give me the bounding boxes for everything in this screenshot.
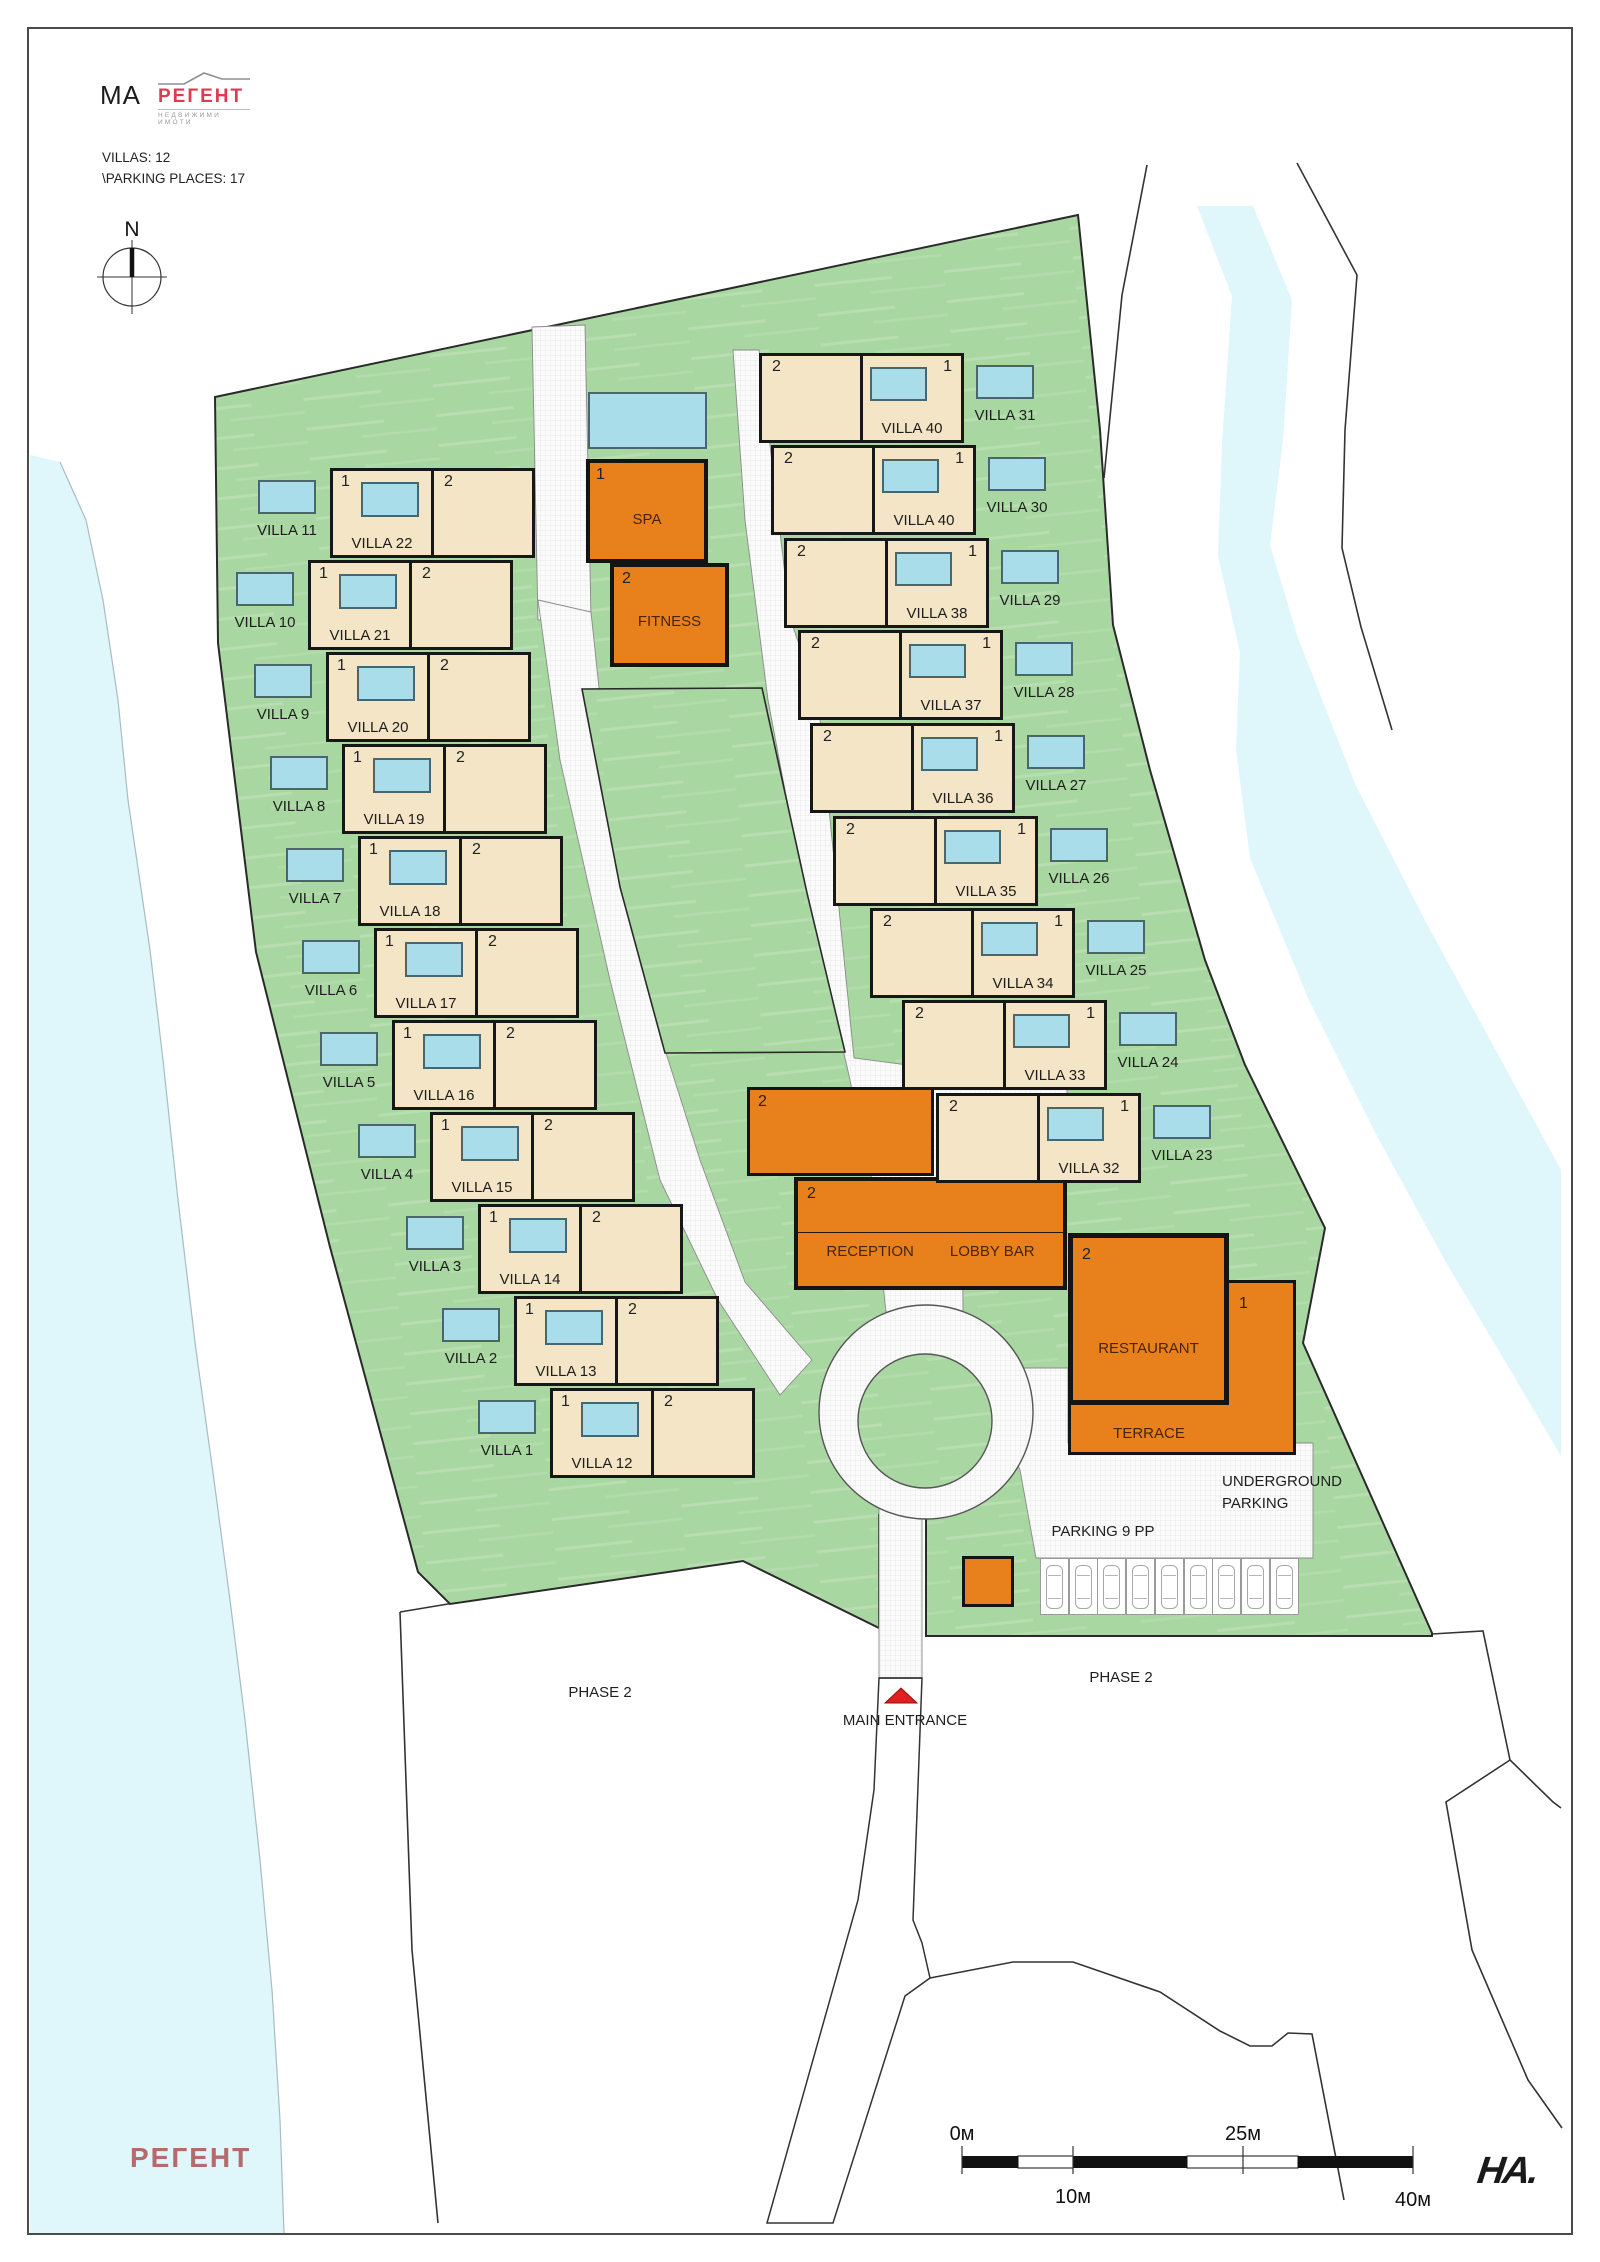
reception-number: 2 — [807, 1185, 816, 1203]
villa-pool-label: VILLA 28 — [989, 684, 1099, 701]
villa-pool-label: VILLA 31 — [950, 407, 1060, 424]
villa-building: 21VILLA 40 — [771, 445, 976, 535]
villa-unit-pool — [509, 1218, 567, 1253]
villa-unit-2: 2 — [430, 655, 528, 739]
unit-number: 1 — [441, 1117, 450, 1135]
villa-unit-1: 1VILLA 14 — [481, 1207, 582, 1291]
unit-number: 1 — [1017, 821, 1026, 839]
roundabout-island — [858, 1354, 992, 1488]
unit-number: 1 — [341, 473, 350, 491]
phase2-left-label: PHASE 2 — [530, 1684, 670, 1701]
parking-stall — [1270, 1558, 1299, 1615]
villa-unit-2: 2 — [873, 911, 974, 995]
car-icon — [1190, 1565, 1207, 1609]
villa-unit-pool — [339, 574, 397, 609]
reception-annex: 2 — [747, 1087, 934, 1176]
villa-pool — [358, 1124, 416, 1158]
villa-unit-pool — [423, 1034, 481, 1069]
villa-unit-1: 1VILLA 22 — [333, 471, 434, 555]
villa-unit-pool — [1013, 1014, 1070, 1048]
parking-stall — [1184, 1558, 1213, 1615]
villa-unit-pool — [389, 850, 447, 885]
villa-building: 1VILLA 172 — [374, 928, 579, 1018]
restaurant-wing-number: 1 — [1239, 1295, 1248, 1313]
villa-building: 1VILLA 142 — [478, 1204, 683, 1294]
villa-building: 21VILLA 33 — [902, 1000, 1107, 1090]
villa-unit-1: 1VILLA 21 — [311, 563, 412, 647]
villa-unit-1: 1VILLA 40 — [863, 356, 961, 440]
unit-number: 1 — [1054, 913, 1063, 931]
villa-unit-1: 1VILLA 20 — [329, 655, 430, 739]
villa-unit-pool — [895, 552, 952, 586]
villa-pool — [1015, 642, 1073, 676]
villa-building-label: VILLA 16 — [396, 1087, 492, 1104]
villa-building-label: VILLA 18 — [362, 903, 458, 920]
unit-number: 2 — [440, 657, 449, 675]
villa-building-label: VILLA 37 — [903, 697, 999, 714]
villa-pool-label: VILLA 3 — [380, 1258, 490, 1275]
restaurant-number: 2 — [1082, 1246, 1091, 1264]
villa-building: 21VILLA 32 — [936, 1093, 1141, 1183]
villa-unit-1: 1VILLA 19 — [345, 747, 446, 831]
villa-building: 1VILLA 182 — [358, 836, 563, 926]
scale-25: 25м — [1225, 2123, 1261, 2145]
villa-unit-pool — [909, 644, 966, 678]
villa-unit-pool — [981, 922, 1038, 956]
car-icon — [1218, 1565, 1235, 1609]
villa-building-label: VILLA 17 — [378, 995, 474, 1012]
villa-building: 1VILLA 222 — [330, 468, 535, 558]
restaurant-building: 2 RESTAURANT — [1068, 1233, 1229, 1405]
reception-divider — [797, 1232, 1064, 1233]
villa-pool — [988, 457, 1046, 491]
unit-number: 2 — [488, 933, 497, 951]
underground-line2: PARKING — [1222, 1495, 1288, 1512]
villa-unit-pool — [581, 1402, 639, 1437]
unit-number: 2 — [797, 543, 806, 561]
parking-stall — [1126, 1558, 1155, 1615]
car-icon — [1046, 1565, 1063, 1609]
villa-unit-1: 1VILLA 13 — [517, 1299, 618, 1383]
villa-pool — [976, 365, 1034, 399]
villa-unit-2: 2 — [654, 1391, 752, 1475]
utility-building — [962, 1556, 1014, 1607]
unit-number: 2 — [444, 473, 453, 491]
stats-villas: VILLAS: 12 — [102, 150, 170, 165]
unit-number: 2 — [544, 1117, 553, 1135]
unit-number: 2 — [883, 913, 892, 931]
villa-building-label: VILLA 40 — [864, 420, 960, 437]
parking-stall — [1212, 1558, 1241, 1615]
villa-unit-pool — [870, 367, 927, 401]
villa-pool — [258, 480, 316, 514]
scale-bar: 0м 25м 10м 40м — [950, 2123, 1431, 2211]
unit-number: 2 — [823, 728, 832, 746]
villa-unit-2: 2 — [762, 356, 863, 440]
villa-pool-label: VILLA 6 — [276, 982, 386, 999]
villa-building-label: VILLA 35 — [938, 883, 1034, 900]
spa-number: 1 — [596, 466, 605, 484]
villa-building: 21VILLA 36 — [810, 723, 1015, 813]
villa-unit-1: 1VILLA 37 — [902, 633, 1000, 717]
villa-building: 1VILLA 192 — [342, 744, 547, 834]
villa-building-label: VILLA 34 — [975, 975, 1071, 992]
villa-pool — [406, 1216, 464, 1250]
unit-number: 1 — [319, 565, 328, 583]
unit-number: 2 — [664, 1393, 673, 1411]
villa-pool — [442, 1308, 500, 1342]
villa-unit-1: 1VILLA 40 — [875, 448, 973, 532]
villa-unit-1: 1VILLA 12 — [553, 1391, 654, 1475]
villa-building-label: VILLA 13 — [518, 1363, 614, 1380]
unit-number: 1 — [353, 749, 362, 767]
compass-n-label: N — [124, 218, 139, 241]
villa-pool — [270, 756, 328, 790]
villa-unit-pool — [361, 482, 419, 517]
villa-pool — [1050, 828, 1108, 862]
villa-pool-label: VILLA 23 — [1127, 1147, 1237, 1164]
villa-building: 21VILLA 35 — [833, 816, 1038, 906]
villa-building: 21VILLA 37 — [798, 630, 1003, 720]
villa-building: 1VILLA 132 — [514, 1296, 719, 1386]
villa-unit-1: 1VILLA 38 — [888, 541, 986, 625]
villa-pool-label: VILLA 24 — [1093, 1054, 1203, 1071]
villa-building-label: VILLA 15 — [434, 1179, 530, 1196]
restaurant-label: RESTAURANT — [1073, 1340, 1224, 1357]
parking-stall — [1155, 1558, 1184, 1615]
villa-unit-2: 2 — [836, 819, 937, 903]
villa-unit-2: 2 — [787, 541, 888, 625]
villa-pool — [1087, 920, 1145, 954]
unit-number: 2 — [949, 1098, 958, 1116]
villa-pool-label: VILLA 29 — [975, 592, 1085, 609]
villa-pool-label: VILLA 27 — [1001, 777, 1111, 794]
unit-number: 1 — [385, 933, 394, 951]
unit-number: 1 — [968, 543, 977, 561]
scale-0: 0м — [950, 2123, 975, 2145]
villa-pool — [254, 664, 312, 698]
scale-40: 40м — [1395, 2189, 1431, 2211]
car-icon — [1075, 1565, 1092, 1609]
villa-unit-2: 2 — [801, 633, 902, 717]
villa-building: 21VILLA 38 — [784, 538, 989, 628]
villa-building: 1VILLA 212 — [308, 560, 513, 650]
car-icon — [1103, 1565, 1120, 1609]
villa-unit-2: 2 — [478, 931, 576, 1015]
car-icon — [1247, 1565, 1264, 1609]
villa-pool-label: VILLA 8 — [244, 798, 354, 815]
villa-unit-1: 1VILLA 33 — [1006, 1003, 1104, 1087]
villa-unit-1: 1VILLA 32 — [1040, 1096, 1138, 1180]
villa-pool — [478, 1400, 536, 1434]
villa-pool-label: VILLA 5 — [294, 1074, 404, 1091]
villa-unit-2: 2 — [534, 1115, 632, 1199]
unit-number: 2 — [784, 450, 793, 468]
stats-parking: \PARKING PLACES: 17 — [102, 171, 245, 186]
unit-number: 1 — [337, 657, 346, 675]
terrace-label: TERRACE — [1079, 1425, 1219, 1442]
villa-unit-2: 2 — [774, 448, 875, 532]
unit-number: 1 — [561, 1393, 570, 1411]
unit-number: 2 — [592, 1209, 601, 1227]
spa-label: SPA — [590, 511, 704, 528]
brand-caption: НЕДВИЖИМИ ИМОТИ — [158, 109, 250, 126]
villa-unit-1: 1VILLA 36 — [914, 726, 1012, 810]
villa-building-label: VILLA 21 — [312, 627, 408, 644]
villa-building: 1VILLA 202 — [326, 652, 531, 742]
entrance-road-lower — [767, 1678, 930, 2223]
annex-number: 2 — [758, 1093, 767, 1111]
underground-line1: UNDERGROUND — [1222, 1473, 1342, 1490]
villa-pool-label: VILLA 9 — [228, 706, 338, 723]
villa-unit-pool — [882, 459, 939, 493]
villa-building-label: VILLA 33 — [1007, 1067, 1103, 1084]
villa-building: 1VILLA 122 — [550, 1388, 755, 1478]
villa-building-label: VILLA 22 — [334, 535, 430, 552]
villa-pool — [1153, 1105, 1211, 1139]
parking-stall — [1097, 1558, 1126, 1615]
unit-number: 1 — [982, 635, 991, 653]
villa-pool-label: VILLA 4 — [332, 1166, 442, 1183]
unit-number: 1 — [525, 1301, 534, 1319]
villa-unit-2: 2 — [496, 1023, 594, 1107]
car-icon — [1161, 1565, 1178, 1609]
reception-label: RECEPTION — [826, 1243, 914, 1260]
villa-pool-label: VILLA 25 — [1061, 962, 1171, 979]
spa-building: 1 SPA — [586, 459, 708, 563]
unit-number: 1 — [1086, 1005, 1095, 1023]
villa-pool-label: VILLA 26 — [1024, 870, 1134, 887]
villa-unit-2: 2 — [434, 471, 532, 555]
unit-number: 1 — [489, 1209, 498, 1227]
villa-unit-1: 1VILLA 15 — [433, 1115, 534, 1199]
fitness-label: FITNESS — [614, 613, 725, 630]
reception-building: 2 RECEPTION LOBBY BAR — [794, 1177, 1067, 1290]
car-icon — [1276, 1565, 1293, 1609]
unit-number: 2 — [915, 1005, 924, 1023]
villa-building: 1VILLA 152 — [430, 1112, 635, 1202]
villa-pool — [236, 572, 294, 606]
compass: N — [97, 218, 167, 314]
unit-number: 1 — [994, 728, 1003, 746]
villa-unit-1: 1VILLA 34 — [974, 911, 1072, 995]
villa-pool — [1027, 735, 1085, 769]
parking-label: PARKING 9 PP — [1028, 1523, 1178, 1540]
unit-number: 1 — [943, 358, 952, 376]
villa-building-label: VILLA 32 — [1041, 1160, 1137, 1177]
villa-building-label: VILLA 36 — [915, 790, 1011, 807]
villa-pool-label: VILLA 10 — [210, 614, 320, 631]
parking-stall — [1040, 1558, 1069, 1615]
villa-unit-pool — [545, 1310, 603, 1345]
villa-pool-label: VILLA 11 — [232, 522, 342, 539]
unit-number: 2 — [472, 841, 481, 859]
villa-unit-2: 2 — [582, 1207, 680, 1291]
villa-building: 21VILLA 34 — [870, 908, 1075, 998]
underground-parking-label: UNDERGROUND PARKING — [1222, 1471, 1342, 1515]
villa-unit-pool — [1047, 1107, 1104, 1141]
car-icon — [1132, 1565, 1149, 1609]
villa-unit-2: 2 — [905, 1003, 1006, 1087]
parking-stall — [1241, 1558, 1270, 1615]
villa-unit-2: 2 — [813, 726, 914, 810]
unit-number: 2 — [772, 358, 781, 376]
villa-pool — [1001, 550, 1059, 584]
unit-number: 1 — [403, 1025, 412, 1043]
villa-unit-2: 2 — [939, 1096, 1040, 1180]
brand-name: РЕГЕНТ — [158, 86, 250, 108]
villa-unit-2: 2 — [618, 1299, 716, 1383]
villa-building-label: VILLA 20 — [330, 719, 426, 736]
unit-number: 1 — [955, 450, 964, 468]
villa-building-label: VILLA 40 — [876, 512, 972, 529]
villa-building-label: VILLA 14 — [482, 1271, 578, 1288]
villa-building-label: VILLA 12 — [554, 1455, 650, 1472]
plan-stats: VILLAS: 12\PARKING PLACES: 17 — [102, 148, 245, 190]
villa-unit-2: 2 — [412, 563, 510, 647]
villa-unit-1: 1VILLA 35 — [937, 819, 1035, 903]
unit-number: 2 — [456, 749, 465, 767]
fitness-building: 2 FITNESS — [610, 563, 729, 667]
villa-unit-pool — [461, 1126, 519, 1161]
villa-unit-2: 2 — [446, 747, 544, 831]
villa-building-label: VILLA 38 — [889, 605, 985, 622]
unit-number: 2 — [811, 635, 820, 653]
unit-number: 2 — [628, 1301, 637, 1319]
villa-pool-label: VILLA 7 — [260, 890, 370, 907]
unit-number: 2 — [506, 1025, 515, 1043]
villa-unit-pool — [373, 758, 431, 793]
villa-unit-2: 2 — [462, 839, 560, 923]
site-plan-page: 0м 25м 10м 40м N MA РЕГЕНТ НЕДВИЖИМИ ИМО… — [0, 0, 1600, 2262]
villa-pool-label: VILLA 2 — [416, 1350, 526, 1367]
villa-unit-pool — [921, 737, 978, 771]
villa-building: 1VILLA 162 — [392, 1020, 597, 1110]
villa-unit-pool — [405, 942, 463, 977]
villa-pool — [1119, 1012, 1177, 1046]
lobby-bar-label: LOBBY BAR — [950, 1243, 1035, 1260]
spa-pool — [588, 392, 707, 449]
project-code: MA — [100, 80, 141, 111]
villa-unit-pool — [944, 830, 1001, 864]
villa-pool-label: VILLA 1 — [452, 1442, 562, 1459]
unit-number: 1 — [1120, 1098, 1129, 1116]
unit-number: 2 — [846, 821, 855, 839]
villa-pool — [286, 848, 344, 882]
scale-10: 10м — [1055, 2186, 1091, 2208]
villa-unit-1: 1VILLA 17 — [377, 931, 478, 1015]
villa-unit-1: 1VILLA 16 — [395, 1023, 496, 1107]
brand-logo: РЕГЕНТ НЕДВИЖИМИ ИМОТИ — [158, 70, 250, 126]
villa-pool-label: VILLA 30 — [962, 499, 1072, 516]
fitness-number: 2 — [622, 570, 631, 588]
phase2-right-label: PHASE 2 — [1051, 1669, 1191, 1686]
watermark-brand: РЕГЕНТ — [130, 2142, 251, 2174]
villa-unit-pool — [357, 666, 415, 701]
villa-building-label: VILLA 19 — [346, 811, 442, 828]
villa-pool — [320, 1032, 378, 1066]
villa-pool — [302, 940, 360, 974]
unit-number: 2 — [422, 565, 431, 583]
unit-number: 1 — [369, 841, 378, 859]
main-entrance-label: MAIN ENTRANCE — [826, 1712, 984, 1729]
parking-stall — [1069, 1558, 1098, 1615]
villa-building: 21VILLA 40 — [759, 353, 964, 443]
villa-unit-1: 1VILLA 18 — [361, 839, 462, 923]
brand-roof-icon — [158, 70, 250, 86]
